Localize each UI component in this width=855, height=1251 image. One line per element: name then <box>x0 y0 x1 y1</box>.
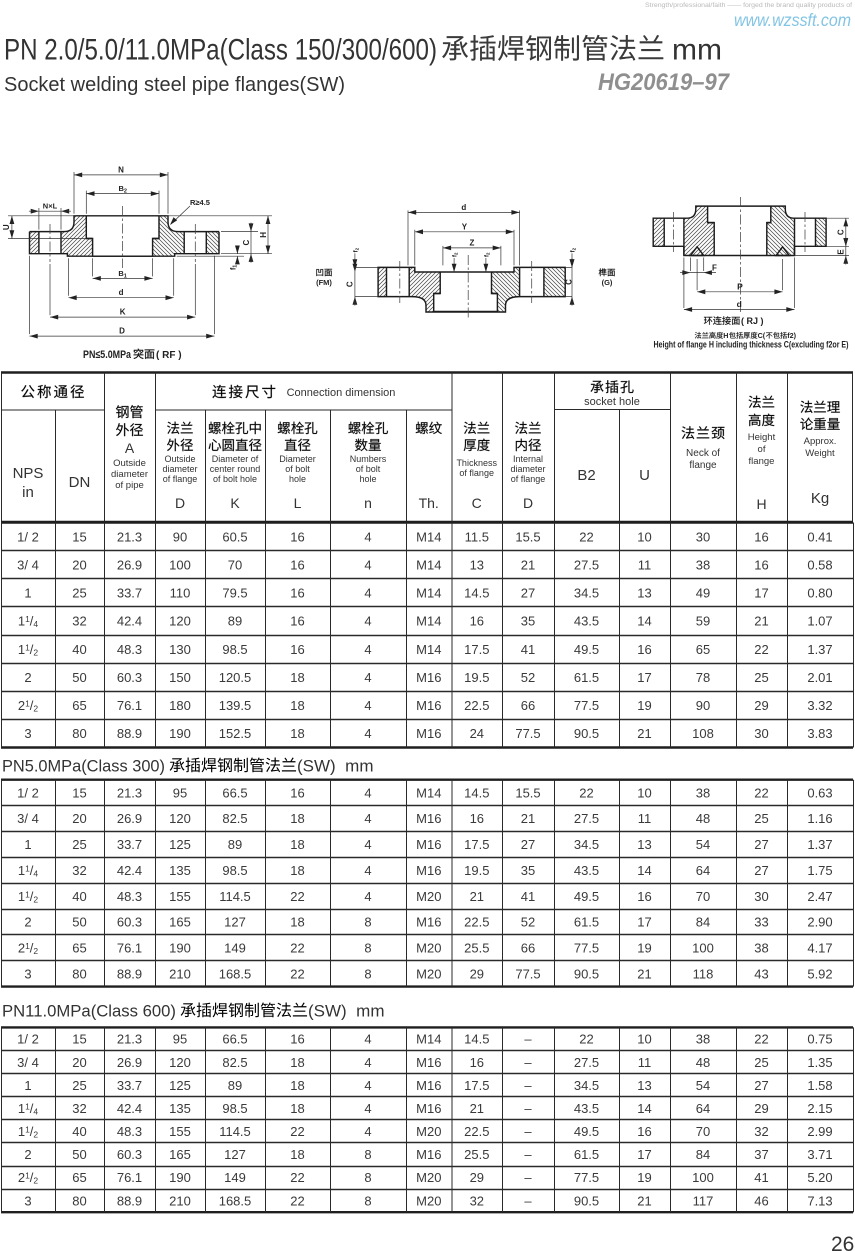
svg-text:4: 4 <box>364 698 371 713</box>
svg-text:8: 8 <box>364 941 371 956</box>
svg-text:8: 8 <box>364 966 371 981</box>
svg-text:1.37: 1.37 <box>807 837 832 852</box>
svg-text:5.92: 5.92 <box>807 966 832 981</box>
svg-text:4: 4 <box>364 586 371 601</box>
svg-text:52: 52 <box>521 915 535 930</box>
svg-text:22.5: 22.5 <box>464 915 489 930</box>
svg-text:60.5: 60.5 <box>222 529 247 544</box>
svg-text:0.75: 0.75 <box>807 1032 832 1047</box>
svg-text:27.5: 27.5 <box>574 557 599 572</box>
svg-text:19: 19 <box>637 941 651 956</box>
svg-text:1: 1 <box>24 837 31 852</box>
svg-text:27: 27 <box>521 837 535 852</box>
svg-text:120.5: 120.5 <box>219 670 252 685</box>
svg-text:27: 27 <box>754 837 768 852</box>
svg-text:18: 18 <box>290 726 304 741</box>
svg-text:2.99: 2.99 <box>807 1124 832 1139</box>
svg-text:4.17: 4.17 <box>807 941 832 956</box>
svg-text:98.5: 98.5 <box>222 1101 247 1116</box>
svg-text:PN 2.0/5.0/11.0MPa(Class 150/3: PN 2.0/5.0/11.0MPa(Class 150/300/600) <box>4 34 437 67</box>
svg-text:120: 120 <box>169 614 191 629</box>
svg-text:190: 190 <box>169 941 191 956</box>
svg-text:65: 65 <box>72 941 86 956</box>
svg-text:diameter: diameter <box>510 464 545 474</box>
svg-text:socket hole: socket hole <box>584 396 640 408</box>
svg-text:18: 18 <box>290 863 304 878</box>
svg-text:18: 18 <box>290 1055 304 1070</box>
svg-text:22: 22 <box>290 1193 304 1208</box>
svg-text:1.16: 1.16 <box>807 811 832 826</box>
svg-text:54: 54 <box>696 1078 710 1093</box>
svg-text:PN≤5.0MPa: PN≤5.0MPa <box>83 349 132 361</box>
svg-text:50: 50 <box>72 670 86 685</box>
svg-text:–: – <box>524 1055 532 1070</box>
svg-text:C: C <box>242 239 251 245</box>
svg-text:34.5: 34.5 <box>574 1078 599 1093</box>
svg-text:26.9: 26.9 <box>117 811 142 826</box>
svg-text:29: 29 <box>754 1101 768 1116</box>
svg-text:127: 127 <box>224 1147 246 1162</box>
svg-text:H: H <box>259 232 268 238</box>
svg-text:of bolt: of bolt <box>285 464 310 474</box>
svg-text:Outside: Outside <box>113 458 146 469</box>
svg-text:43.5: 43.5 <box>574 1101 599 1116</box>
svg-text:95: 95 <box>173 785 187 800</box>
svg-text:M14: M14 <box>416 529 441 544</box>
svg-text:38: 38 <box>696 1032 710 1047</box>
svg-text:22: 22 <box>579 1032 593 1047</box>
svg-text:13: 13 <box>470 557 484 572</box>
svg-text:77.5: 77.5 <box>515 726 540 741</box>
svg-text:25: 25 <box>754 670 768 685</box>
svg-text:PN5.0MPa(Class 300): PN5.0MPa(Class 300) <box>2 757 165 776</box>
svg-text:35: 35 <box>521 863 535 878</box>
svg-text:1.75: 1.75 <box>807 863 832 878</box>
svg-text:14: 14 <box>637 1101 651 1116</box>
svg-text:M16: M16 <box>416 726 441 741</box>
svg-text:22: 22 <box>579 529 593 544</box>
svg-text:30: 30 <box>754 726 768 741</box>
svg-text:8: 8 <box>364 915 371 930</box>
svg-text:hole: hole <box>289 474 306 484</box>
svg-text:–: – <box>524 1193 532 1208</box>
svg-text:16: 16 <box>754 529 768 544</box>
svg-text:89: 89 <box>228 1078 242 1093</box>
svg-text:89: 89 <box>228 837 242 852</box>
svg-text:2: 2 <box>24 915 31 930</box>
svg-text:17: 17 <box>637 1147 651 1162</box>
svg-text:43.5: 43.5 <box>574 614 599 629</box>
svg-text:4: 4 <box>364 1101 371 1116</box>
svg-text:n: n <box>364 495 372 511</box>
svg-text:118: 118 <box>693 966 714 981</box>
svg-text:0.63: 0.63 <box>807 785 832 800</box>
svg-text:f2: f2 <box>571 247 577 252</box>
svg-text:42.4: 42.4 <box>117 1101 142 1116</box>
svg-text:14.5: 14.5 <box>464 785 489 800</box>
svg-text:54: 54 <box>696 837 710 852</box>
svg-text:88.9: 88.9 <box>117 1193 142 1208</box>
svg-text:98.5: 98.5 <box>222 642 247 657</box>
svg-text:3/ 4: 3/ 4 <box>17 557 39 572</box>
svg-text:14.5: 14.5 <box>464 1032 489 1047</box>
svg-text:( RJ ): ( RJ ) <box>741 316 764 326</box>
svg-text:Z: Z <box>469 238 474 247</box>
svg-text:18: 18 <box>290 837 304 852</box>
svg-text:Height of flange H including t: Height of flange H including thickness C… <box>654 340 849 350</box>
svg-text:4: 4 <box>364 529 371 544</box>
svg-text:26: 26 <box>831 1233 854 1251</box>
svg-text:19.5: 19.5 <box>464 670 489 685</box>
svg-text:M16: M16 <box>416 915 441 930</box>
svg-text:21: 21 <box>637 726 651 741</box>
svg-text:4: 4 <box>364 863 371 878</box>
svg-text:Th.: Th. <box>419 495 439 511</box>
svg-text:16: 16 <box>290 529 304 544</box>
svg-text:K: K <box>230 495 240 511</box>
svg-text:flange: flange <box>689 460 717 471</box>
svg-text:21/2: 21/2 <box>18 941 39 957</box>
svg-text:70: 70 <box>696 1124 710 1139</box>
svg-text:D: D <box>175 495 185 511</box>
svg-text:77.5: 77.5 <box>574 941 599 956</box>
svg-text:13: 13 <box>637 837 651 852</box>
svg-text:22.5: 22.5 <box>464 698 489 713</box>
svg-text:60.3: 60.3 <box>117 670 142 685</box>
svg-text:21: 21 <box>470 889 484 904</box>
svg-text:1: 1 <box>24 1078 31 1093</box>
svg-text:155: 155 <box>169 889 191 904</box>
svg-text:M16: M16 <box>416 1055 441 1070</box>
svg-text:130: 130 <box>169 642 191 657</box>
svg-text:21: 21 <box>754 614 768 629</box>
svg-text:29: 29 <box>470 966 484 981</box>
svg-text:26.9: 26.9 <box>117 1055 142 1070</box>
svg-text:Y: Y <box>462 222 468 231</box>
svg-text:–: – <box>524 1124 532 1139</box>
svg-text:42.4: 42.4 <box>117 614 142 629</box>
svg-text:M16: M16 <box>416 698 441 713</box>
svg-text:40: 40 <box>72 1124 86 1139</box>
svg-text:M16: M16 <box>416 863 441 878</box>
svg-text:of flange: of flange <box>163 474 198 484</box>
svg-text:41: 41 <box>521 889 535 904</box>
svg-text:25: 25 <box>754 811 768 826</box>
svg-text:165: 165 <box>169 915 191 930</box>
svg-text:d: d <box>461 203 466 212</box>
svg-text:65: 65 <box>72 698 86 713</box>
svg-text:76.1: 76.1 <box>117 698 142 713</box>
svg-text:–: – <box>524 1101 532 1116</box>
svg-text:95: 95 <box>173 1032 187 1047</box>
svg-text:L: L <box>294 495 302 511</box>
svg-text:61.5: 61.5 <box>574 1147 599 1162</box>
svg-text:Strength/professional/faith ——: Strength/professional/faith —— forged th… <box>645 2 852 9</box>
svg-text:120: 120 <box>169 811 191 826</box>
svg-text:60.3: 60.3 <box>117 915 142 930</box>
svg-text:3/ 4: 3/ 4 <box>17 1055 39 1070</box>
svg-text:165: 165 <box>169 1147 191 1162</box>
svg-text:89: 89 <box>228 614 242 629</box>
svg-text:127: 127 <box>224 915 246 930</box>
svg-text:(SW) mm: (SW) mm <box>308 1002 384 1021</box>
svg-text:15: 15 <box>72 785 86 800</box>
svg-text:25: 25 <box>72 837 86 852</box>
svg-text:(FM): (FM) <box>316 278 332 287</box>
svg-text:11/4: 11/4 <box>18 614 39 630</box>
svg-text:21.3: 21.3 <box>117 785 142 800</box>
svg-text:4: 4 <box>364 1078 371 1093</box>
svg-text:4: 4 <box>364 614 371 629</box>
svg-text:15: 15 <box>72 529 86 544</box>
svg-text:7.13: 7.13 <box>807 1193 832 1208</box>
svg-text:120: 120 <box>169 1055 191 1070</box>
svg-text:22.5: 22.5 <box>464 1124 489 1139</box>
svg-text:38: 38 <box>754 941 768 956</box>
svg-text:–: – <box>524 1032 532 1047</box>
svg-text:22: 22 <box>754 642 768 657</box>
svg-text:40: 40 <box>72 642 86 657</box>
svg-text:41: 41 <box>754 1170 768 1185</box>
svg-text:65: 65 <box>696 642 710 657</box>
svg-text:16: 16 <box>637 889 651 904</box>
svg-text:11/4: 11/4 <box>18 863 39 879</box>
svg-text:16: 16 <box>470 1055 484 1070</box>
svg-text:U: U <box>639 467 650 484</box>
svg-text:64: 64 <box>696 863 710 878</box>
svg-text:48.3: 48.3 <box>117 642 142 657</box>
svg-text:4: 4 <box>364 1124 371 1139</box>
svg-text:8: 8 <box>364 1147 371 1162</box>
svg-text:11/2: 11/2 <box>18 642 39 658</box>
svg-text:66.5: 66.5 <box>222 1032 247 1047</box>
svg-text:29: 29 <box>470 1170 484 1185</box>
svg-text:125: 125 <box>169 837 191 852</box>
svg-text:8: 8 <box>364 1193 371 1208</box>
svg-text:HG20619–97: HG20619–97 <box>598 69 731 96</box>
svg-text:3.32: 3.32 <box>807 698 832 713</box>
svg-text:1: 1 <box>24 586 31 601</box>
svg-text:77.5: 77.5 <box>574 1170 599 1185</box>
svg-text:24: 24 <box>470 726 484 741</box>
svg-text:16: 16 <box>470 614 484 629</box>
svg-text:4: 4 <box>364 557 371 572</box>
svg-text:108: 108 <box>692 726 714 741</box>
svg-text:C: C <box>837 229 846 235</box>
svg-text:100: 100 <box>692 941 714 956</box>
svg-text:32: 32 <box>72 614 86 629</box>
svg-text:16: 16 <box>754 557 768 572</box>
svg-text:4: 4 <box>364 726 371 741</box>
svg-text:48.3: 48.3 <box>117 1124 142 1139</box>
svg-text:84: 84 <box>696 915 710 930</box>
svg-text:61.5: 61.5 <box>574 915 599 930</box>
svg-text:18: 18 <box>290 915 304 930</box>
svg-text:–: – <box>524 1170 532 1185</box>
svg-text:22: 22 <box>290 1124 304 1139</box>
svg-text:50: 50 <box>72 1147 86 1162</box>
svg-text:152.5: 152.5 <box>219 726 252 741</box>
svg-text:77.5: 77.5 <box>515 966 540 981</box>
svg-text:98.5: 98.5 <box>222 863 247 878</box>
svg-text:C: C <box>565 279 574 285</box>
svg-text:M20: M20 <box>416 1170 441 1185</box>
svg-text:1.07: 1.07 <box>807 614 832 629</box>
svg-text:50: 50 <box>72 915 86 930</box>
svg-text:33.7: 33.7 <box>117 1078 142 1093</box>
svg-text:48: 48 <box>696 811 710 826</box>
svg-text:100: 100 <box>692 1170 714 1185</box>
svg-text:17: 17 <box>637 670 651 685</box>
svg-text:21.3: 21.3 <box>117 1032 142 1047</box>
svg-text:Height: Height <box>748 432 776 443</box>
svg-text:19.5: 19.5 <box>464 863 489 878</box>
svg-text:13: 13 <box>637 586 651 601</box>
svg-text:8: 8 <box>364 1170 371 1185</box>
svg-text:B2: B2 <box>118 184 126 195</box>
svg-text:19: 19 <box>637 698 651 713</box>
svg-text:22: 22 <box>754 1032 768 1047</box>
svg-text:Outside: Outside <box>164 454 195 464</box>
svg-text:11: 11 <box>638 811 652 826</box>
svg-text:Approx.: Approx. <box>804 436 837 447</box>
svg-text:C: C <box>346 281 355 287</box>
svg-text:34.5: 34.5 <box>574 837 599 852</box>
svg-text:27: 27 <box>521 586 535 601</box>
svg-text:18: 18 <box>290 1147 304 1162</box>
svg-text:80: 80 <box>72 1193 86 1208</box>
svg-text:22: 22 <box>579 785 593 800</box>
svg-text:3/ 4: 3/ 4 <box>17 811 39 826</box>
svg-text:Internal: Internal <box>513 454 543 464</box>
svg-text:4: 4 <box>364 837 371 852</box>
svg-text:48.3: 48.3 <box>117 889 142 904</box>
svg-text:M20: M20 <box>416 1193 441 1208</box>
svg-text:32: 32 <box>470 1193 484 1208</box>
svg-text:D: D <box>523 495 533 511</box>
svg-text:64: 64 <box>696 1101 710 1116</box>
svg-text:f2: f2 <box>453 252 459 257</box>
svg-text:17.5: 17.5 <box>464 1078 489 1093</box>
svg-text:30: 30 <box>754 889 768 904</box>
svg-text:43.5: 43.5 <box>574 863 599 878</box>
svg-text:16: 16 <box>290 642 304 657</box>
svg-text:16: 16 <box>290 586 304 601</box>
svg-text:13: 13 <box>637 1078 651 1093</box>
svg-text:22: 22 <box>290 966 304 981</box>
svg-text:4: 4 <box>364 1055 371 1070</box>
svg-text:17.5: 17.5 <box>464 837 489 852</box>
svg-text:30: 30 <box>696 529 710 544</box>
svg-text:5.20: 5.20 <box>807 1170 832 1185</box>
svg-text:d: d <box>119 288 124 297</box>
svg-text:125: 125 <box>169 1078 191 1093</box>
svg-text:180: 180 <box>169 698 191 713</box>
svg-text:of flange: of flange <box>459 468 494 478</box>
svg-text:15.5: 15.5 <box>515 785 540 800</box>
svg-text:in: in <box>22 484 34 501</box>
svg-text:16: 16 <box>290 785 304 800</box>
svg-text:18: 18 <box>290 1101 304 1116</box>
svg-text:D: D <box>119 327 125 336</box>
svg-text:f1: f1 <box>231 265 239 270</box>
svg-text:80: 80 <box>72 726 86 741</box>
svg-text:35: 35 <box>521 614 535 629</box>
svg-text:43: 43 <box>754 966 768 981</box>
svg-text:4: 4 <box>364 670 371 685</box>
svg-text:14: 14 <box>637 614 651 629</box>
svg-text:66: 66 <box>521 941 535 956</box>
svg-text:33.7: 33.7 <box>117 586 142 601</box>
svg-text:90.5: 90.5 <box>574 1193 599 1208</box>
svg-text:3.83: 3.83 <box>807 726 832 741</box>
svg-text:16: 16 <box>290 1032 304 1047</box>
svg-text:21: 21 <box>637 966 651 981</box>
svg-text:26.9: 26.9 <box>117 557 142 572</box>
svg-text:0.58: 0.58 <box>807 557 832 572</box>
svg-text:M14: M14 <box>416 586 441 601</box>
svg-text:B2: B2 <box>577 467 595 484</box>
svg-text:–: – <box>524 1147 532 1162</box>
svg-text:114.5: 114.5 <box>219 889 251 904</box>
svg-text:78: 78 <box>696 670 710 685</box>
svg-text:190: 190 <box>169 726 191 741</box>
svg-text:2.01: 2.01 <box>807 670 832 685</box>
svg-text:32: 32 <box>72 1101 86 1116</box>
svg-text:25: 25 <box>754 1055 768 1070</box>
svg-text:19: 19 <box>637 1170 651 1185</box>
svg-text:49.5: 49.5 <box>574 1124 599 1139</box>
svg-text:22: 22 <box>290 889 304 904</box>
svg-text:114.5: 114.5 <box>219 1124 251 1139</box>
svg-text:of bolt hole: of bolt hole <box>213 474 257 484</box>
svg-text:B1: B1 <box>118 269 126 280</box>
svg-text:K: K <box>120 308 126 317</box>
svg-text:R≥4.5: R≥4.5 <box>190 198 210 207</box>
svg-text:www.wzssft.com: www.wzssft.com <box>734 10 851 30</box>
svg-text:17: 17 <box>754 586 768 601</box>
svg-text:flange: flange <box>749 456 775 467</box>
svg-text:20: 20 <box>72 1055 86 1070</box>
svg-text:1.58: 1.58 <box>807 1078 832 1093</box>
svg-text:4: 4 <box>364 642 371 657</box>
svg-text:Kg: Kg <box>811 490 829 507</box>
svg-text:of bolt: of bolt <box>356 464 381 474</box>
svg-text:2.90: 2.90 <box>807 915 832 930</box>
svg-text:38: 38 <box>696 785 710 800</box>
svg-text:0.41: 0.41 <box>807 529 832 544</box>
svg-text:Numbers: Numbers <box>350 454 387 464</box>
svg-text:149: 149 <box>224 1170 246 1185</box>
svg-text:C: C <box>472 495 482 511</box>
svg-text:3: 3 <box>24 1193 31 1208</box>
svg-text:(G): (G) <box>602 278 613 287</box>
svg-text:66.5: 66.5 <box>222 785 247 800</box>
svg-text:DN: DN <box>69 474 91 491</box>
svg-text:4: 4 <box>364 811 371 826</box>
svg-text:M16: M16 <box>416 670 441 685</box>
svg-text:(SW) mm: (SW) mm <box>297 757 373 776</box>
svg-text:150: 150 <box>169 670 191 685</box>
svg-text:32: 32 <box>72 863 86 878</box>
svg-text:4: 4 <box>364 1032 371 1047</box>
svg-text:18: 18 <box>290 698 304 713</box>
svg-text:F: F <box>712 264 717 273</box>
svg-text:M16: M16 <box>416 811 441 826</box>
svg-text:25.5: 25.5 <box>464 1147 489 1162</box>
svg-text:22: 22 <box>290 1170 304 1185</box>
svg-text:d: d <box>737 299 742 309</box>
